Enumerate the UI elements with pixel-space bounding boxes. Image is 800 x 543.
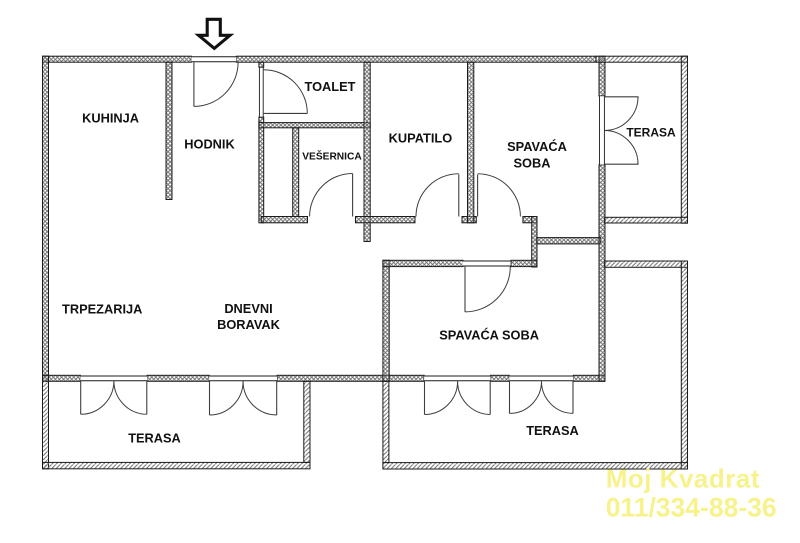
svg-text:KUHINJA: KUHINJA bbox=[82, 110, 139, 125]
svg-text:TERASA: TERASA bbox=[128, 431, 181, 446]
svg-text:BORAVAK: BORAVAK bbox=[217, 317, 281, 332]
svg-text:SPAVAĆA SOBA: SPAVAĆA SOBA bbox=[439, 327, 539, 342]
svg-text:DNEVNI: DNEVNI bbox=[224, 301, 272, 316]
svg-text:011/334-88-36: 011/334-88-36 bbox=[606, 493, 777, 523]
svg-text:HODNIK: HODNIK bbox=[184, 136, 235, 151]
svg-text:KUPATILO: KUPATILO bbox=[389, 131, 453, 146]
svg-text:TERASA: TERASA bbox=[526, 423, 579, 438]
svg-text:Moj Kvadrat: Moj Kvadrat bbox=[606, 464, 760, 494]
svg-text:TRPEZARIJA: TRPEZARIJA bbox=[62, 301, 142, 316]
svg-text:TERASA: TERASA bbox=[626, 125, 676, 139]
svg-text:SPAVAĆA: SPAVAĆA bbox=[507, 139, 567, 154]
svg-text:SOBA: SOBA bbox=[514, 155, 551, 170]
svg-text:VEŠERNICA: VEŠERNICA bbox=[302, 149, 362, 162]
svg-text:TOALET: TOALET bbox=[305, 79, 356, 94]
